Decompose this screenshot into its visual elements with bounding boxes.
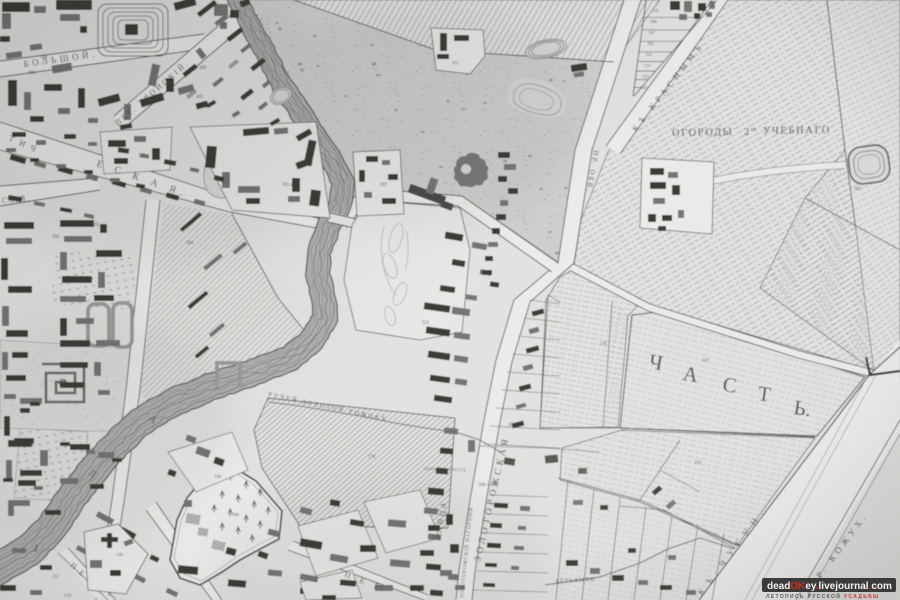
- svg-text:deadOKey.livejournal.com: deadOKey.livejournal.com: [767, 581, 892, 592]
- svg-text:ЛЕТОПИСЬ РУССКОЙ УСАДЬБЫ: ЛЕТОПИСЬ РУССКОЙ УСАДЬБЫ: [766, 592, 879, 600]
